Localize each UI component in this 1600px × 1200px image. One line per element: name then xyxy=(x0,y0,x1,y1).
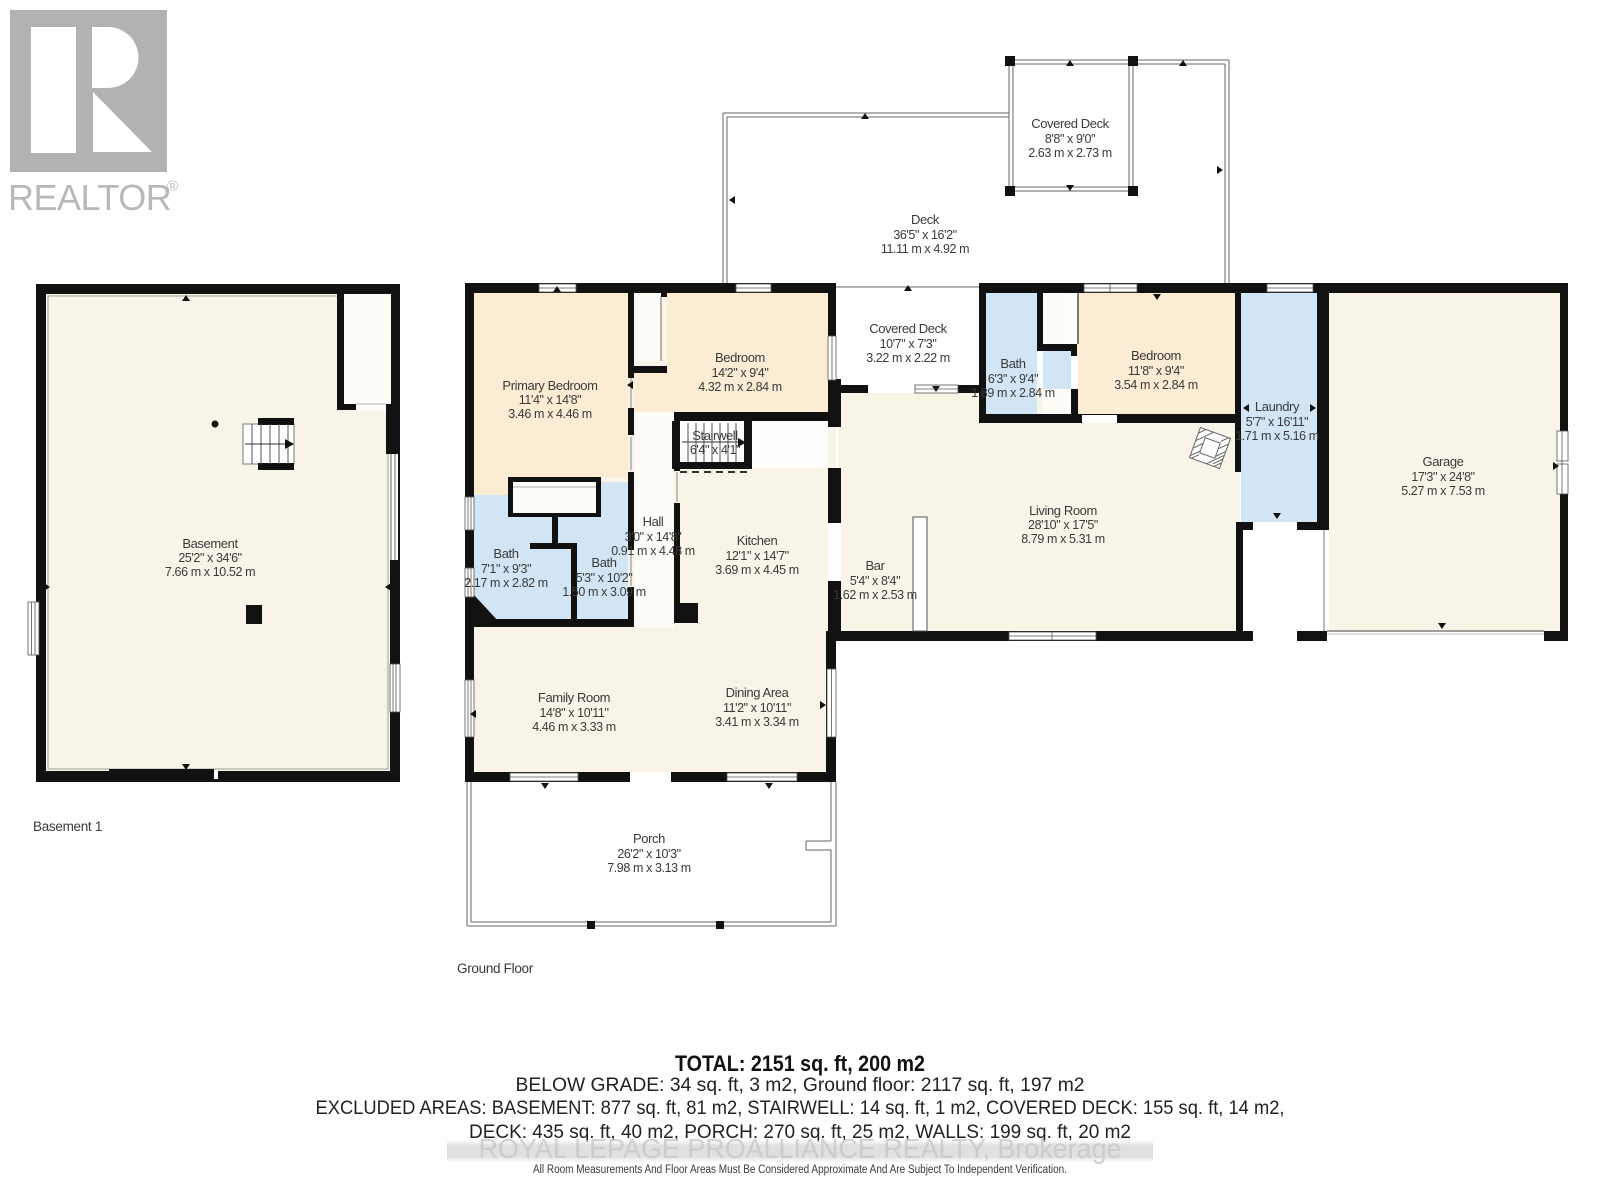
svg-text:Deck: Deck xyxy=(911,212,940,227)
svg-text:5'3" x 10'2": 5'3" x 10'2" xyxy=(576,571,633,585)
svg-text:11'8" x 9'4": 11'8" x 9'4" xyxy=(1128,364,1184,378)
svg-text:REALTOR: REALTOR xyxy=(8,177,171,218)
svg-text:0.91 m x 4.48 m: 0.91 m x 4.48 m xyxy=(611,544,695,558)
svg-text:Kitchen: Kitchen xyxy=(737,533,778,548)
svg-text:3.46 m x 4.46 m: 3.46 m x 4.46 m xyxy=(508,407,592,421)
svg-text:EXCLUDED AREAS: BASEMENT: 877: EXCLUDED AREAS: BASEMENT: 877 sq. ft, 81… xyxy=(316,1097,1285,1119)
svg-text:Living Room: Living Room xyxy=(1029,503,1097,518)
svg-text:2.17 m x 2.82 m: 2.17 m x 2.82 m xyxy=(464,576,548,590)
svg-text:5'4" x 8'4": 5'4" x 8'4" xyxy=(850,574,900,588)
svg-text:1.62 m x 2.53 m: 1.62 m x 2.53 m xyxy=(833,588,917,602)
svg-text:11'4" x 14'8": 11'4" x 14'8" xyxy=(519,393,581,407)
svg-text:4.32 m x 2.84 m: 4.32 m x 2.84 m xyxy=(698,380,782,394)
svg-text:Covered Deck: Covered Deck xyxy=(1031,116,1109,131)
svg-text:7'1" x 9'3": 7'1" x 9'3" xyxy=(481,562,531,576)
svg-text:Bedroom: Bedroom xyxy=(715,350,765,365)
svg-text:2.63 m x 2.73 m: 2.63 m x 2.73 m xyxy=(1028,146,1112,160)
svg-text:3.54 m x 2.84 m: 3.54 m x 2.84 m xyxy=(1114,378,1198,392)
svg-text:25'2" x 34'6": 25'2" x 34'6" xyxy=(178,551,241,565)
svg-text:Ground Floor: Ground Floor xyxy=(457,961,534,976)
svg-text:14'8" x 10'11": 14'8" x 10'11" xyxy=(540,706,609,720)
svg-text:17'3" x 24'8": 17'3" x 24'8" xyxy=(1411,470,1474,484)
svg-text:Basement 1: Basement 1 xyxy=(33,819,102,834)
svg-text:5.27 m x 7.53 m: 5.27 m x 7.53 m xyxy=(1401,484,1485,498)
svg-text:Bath: Bath xyxy=(1000,356,1025,371)
svg-text:1.71 m x 5.16 m: 1.71 m x 5.16 m xyxy=(1235,429,1319,443)
svg-text:Stairwell: Stairwell xyxy=(692,428,738,443)
svg-text:Hall: Hall xyxy=(643,514,664,529)
svg-text:TOTAL: 2151 sq. ft, 200 m2: TOTAL: 2151 sq. ft, 200 m2 xyxy=(675,1051,925,1076)
svg-text:1.89 m x 2.84 m: 1.89 m x 2.84 m xyxy=(971,386,1055,400)
svg-text:36'5" x 16'2": 36'5" x 16'2" xyxy=(893,228,956,242)
svg-text:3.69 m x 4.45 m: 3.69 m x 4.45 m xyxy=(715,563,799,577)
svg-text:Garage: Garage xyxy=(1423,454,1464,469)
svg-text:Basement: Basement xyxy=(182,536,238,551)
svg-text:26'2" x 10'3": 26'2" x 10'3" xyxy=(617,847,680,861)
svg-text:11'2" x 10'11": 11'2" x 10'11" xyxy=(723,701,791,715)
svg-text:Covered Deck: Covered Deck xyxy=(869,321,947,336)
svg-text:All Room Measurements And Floo: All Room Measurements And Floor Areas Mu… xyxy=(533,1164,1067,1176)
svg-text:ROYAL LEPAGE PROALLIANCE REALT: ROYAL LEPAGE PROALLIANCE REALTY, Brokera… xyxy=(479,1133,1122,1164)
svg-text:12'1" x 14'7": 12'1" x 14'7" xyxy=(725,549,788,563)
svg-text:6'3" x 9'4": 6'3" x 9'4" xyxy=(988,372,1038,386)
svg-text:3.22 m x 2.22 m: 3.22 m x 2.22 m xyxy=(866,351,950,365)
svg-text:Porch: Porch xyxy=(633,831,665,846)
svg-text:5'7" x 16'11": 5'7" x 16'11" xyxy=(1246,415,1308,429)
svg-text:Dining Area: Dining Area xyxy=(726,685,790,700)
svg-text:3'0" x 14'8": 3'0" x 14'8" xyxy=(625,530,682,544)
svg-text:Bedroom: Bedroom xyxy=(1131,348,1181,363)
svg-text:7.98 m x 3.13 m: 7.98 m x 3.13 m xyxy=(607,861,691,875)
svg-text:14'2" x 9'4": 14'2" x 9'4" xyxy=(712,366,769,380)
svg-text:1.50 m x 3.09 m: 1.50 m x 3.09 m xyxy=(562,585,646,599)
svg-text:8'8" x 9'0": 8'8" x 9'0" xyxy=(1045,132,1095,146)
svg-text:28'10" x 17'5": 28'10" x 17'5" xyxy=(1028,518,1098,532)
svg-text:®: ® xyxy=(167,178,178,195)
svg-text:7.66 m x 10.52 m: 7.66 m x 10.52 m xyxy=(165,565,255,579)
svg-text:4.46 m x 3.33 m: 4.46 m x 3.33 m xyxy=(532,720,616,734)
svg-text:3.41 m x 3.34 m: 3.41 m x 3.34 m xyxy=(715,715,799,729)
svg-text:11.11 m x 4.92 m: 11.11 m x 4.92 m xyxy=(881,242,969,256)
svg-text:8.79 m x 5.31 m: 8.79 m x 5.31 m xyxy=(1021,532,1105,546)
svg-text:10'7" x 7'3": 10'7" x 7'3" xyxy=(880,337,937,351)
svg-text:BELOW GRADE: 34 sq. ft, 3 m2,: BELOW GRADE: 34 sq. ft, 3 m2, Ground flo… xyxy=(516,1074,1085,1096)
svg-text:6'4" x 4'1": 6'4" x 4'1" xyxy=(690,443,740,457)
svg-text:Bar: Bar xyxy=(865,558,885,573)
svg-text:Laundry: Laundry xyxy=(1255,399,1300,414)
svg-text:Bath: Bath xyxy=(591,555,616,570)
svg-text:Bath: Bath xyxy=(493,546,518,561)
svg-text:Primary Bedroom: Primary Bedroom xyxy=(502,378,597,393)
svg-text:Family Room: Family Room xyxy=(538,690,610,705)
